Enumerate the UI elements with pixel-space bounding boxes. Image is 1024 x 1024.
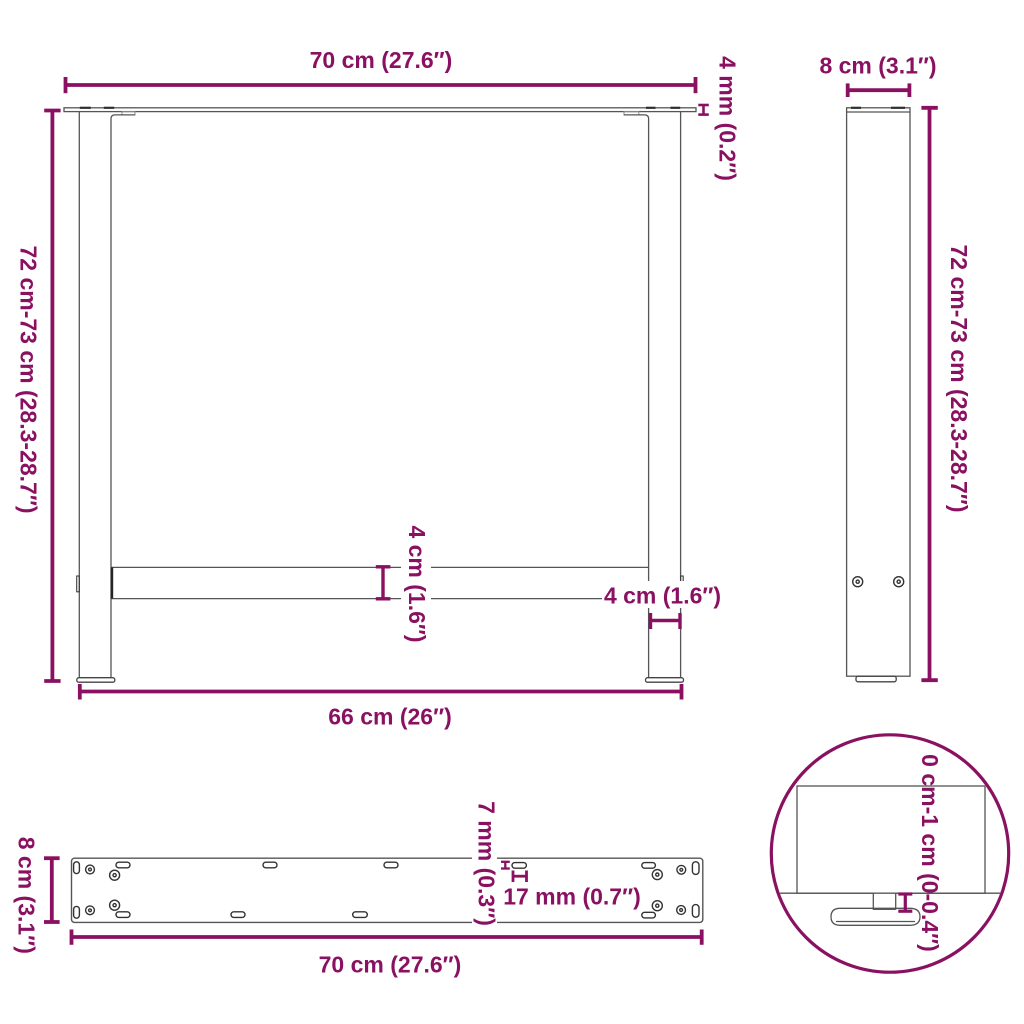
svg-text:7 mm (0.3″): 7 mm (0.3″): [474, 801, 500, 926]
svg-text:8 cm (3.1″): 8 cm (3.1″): [819, 53, 936, 79]
svg-text:72 cm-73 cm (28.3-28.7″): 72 cm-73 cm (28.3-28.7″): [946, 244, 972, 512]
svg-text:70 cm (27.6″): 70 cm (27.6″): [310, 47, 453, 73]
svg-text:4 cm (1.6″): 4 cm (1.6″): [604, 583, 721, 609]
svg-text:8 cm (3.1″): 8 cm (3.1″): [14, 837, 40, 954]
svg-text:0 cm-1 cm (0-0.4″): 0 cm-1 cm (0-0.4″): [917, 754, 943, 952]
svg-text:4 cm (1.6″): 4 cm (1.6″): [404, 525, 430, 642]
svg-text:66 cm (26″): 66 cm (26″): [328, 704, 452, 730]
svg-text:72 cm-73 cm (28.3-28.7″): 72 cm-73 cm (28.3-28.7″): [16, 245, 42, 513]
svg-text:70 cm (27.6″): 70 cm (27.6″): [319, 952, 462, 978]
svg-text:17 mm (0.7″): 17 mm (0.7″): [503, 884, 641, 910]
svg-text:4 mm (0.2″): 4 mm (0.2″): [715, 56, 741, 181]
